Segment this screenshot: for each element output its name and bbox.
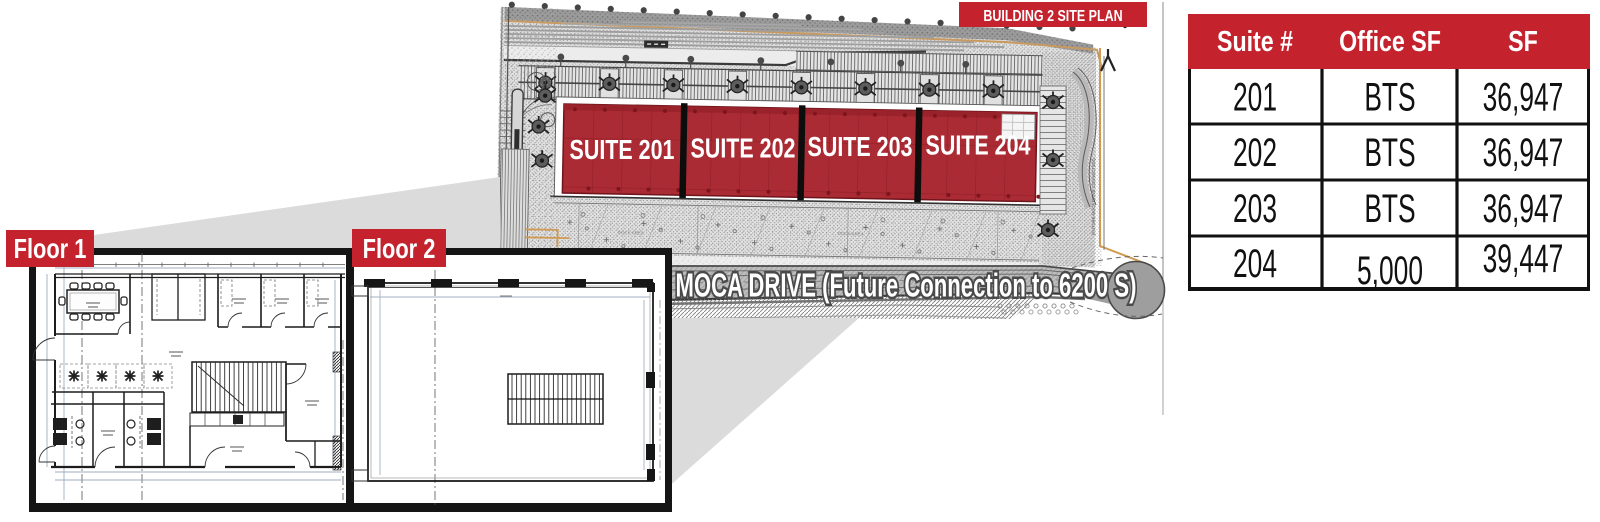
svg-text:SUITE 201: SUITE 201 [570, 136, 675, 166]
svg-text:BTS: BTS [1364, 187, 1415, 232]
svg-text:BUILDING 2 SITE PLAN: BUILDING 2 SITE PLAN [983, 8, 1122, 26]
svg-text:SUITE 204: SUITE 204 [926, 131, 1031, 161]
svg-text:Suite #: Suite # [1217, 24, 1293, 57]
svg-text:203: 203 [1233, 187, 1277, 232]
svg-text:Office SF: Office SF [1339, 24, 1441, 57]
svg-text:BTS: BTS [1364, 131, 1415, 176]
svg-text:5,000: 5,000 [1357, 249, 1423, 294]
svg-text:Floor 1: Floor 1 [14, 233, 87, 264]
svg-text:36,947: 36,947 [1483, 75, 1564, 120]
svg-text:204: 204 [1233, 242, 1277, 287]
svg-text:Floor 2: Floor 2 [363, 233, 436, 264]
svg-text:SUITE 202: SUITE 202 [691, 134, 796, 164]
svg-text:36,947: 36,947 [1483, 187, 1564, 232]
svg-text:39,447: 39,447 [1483, 237, 1564, 282]
svg-text:DOCK AREA: DOCK AREA [618, 230, 644, 235]
svg-text:201: 201 [1233, 75, 1277, 120]
svg-text:MOCA DRIVE (Future Connection: MOCA DRIVE (Future Connection to 6200 S) [676, 267, 1137, 303]
svg-text:DOCK AREA: DOCK AREA [838, 231, 864, 236]
svg-text:SUITE 203: SUITE 203 [808, 133, 913, 163]
svg-text:202: 202 [1233, 131, 1277, 176]
svg-text:SF: SF [1508, 24, 1538, 57]
svg-text:(FUTURE MOCA DRIVE CONNECTION): (FUTURE MOCA DRIVE CONNECTION) [1091, 158, 1096, 235]
svg-text:36,947: 36,947 [1483, 131, 1564, 176]
svg-text:BTS: BTS [1364, 75, 1415, 120]
